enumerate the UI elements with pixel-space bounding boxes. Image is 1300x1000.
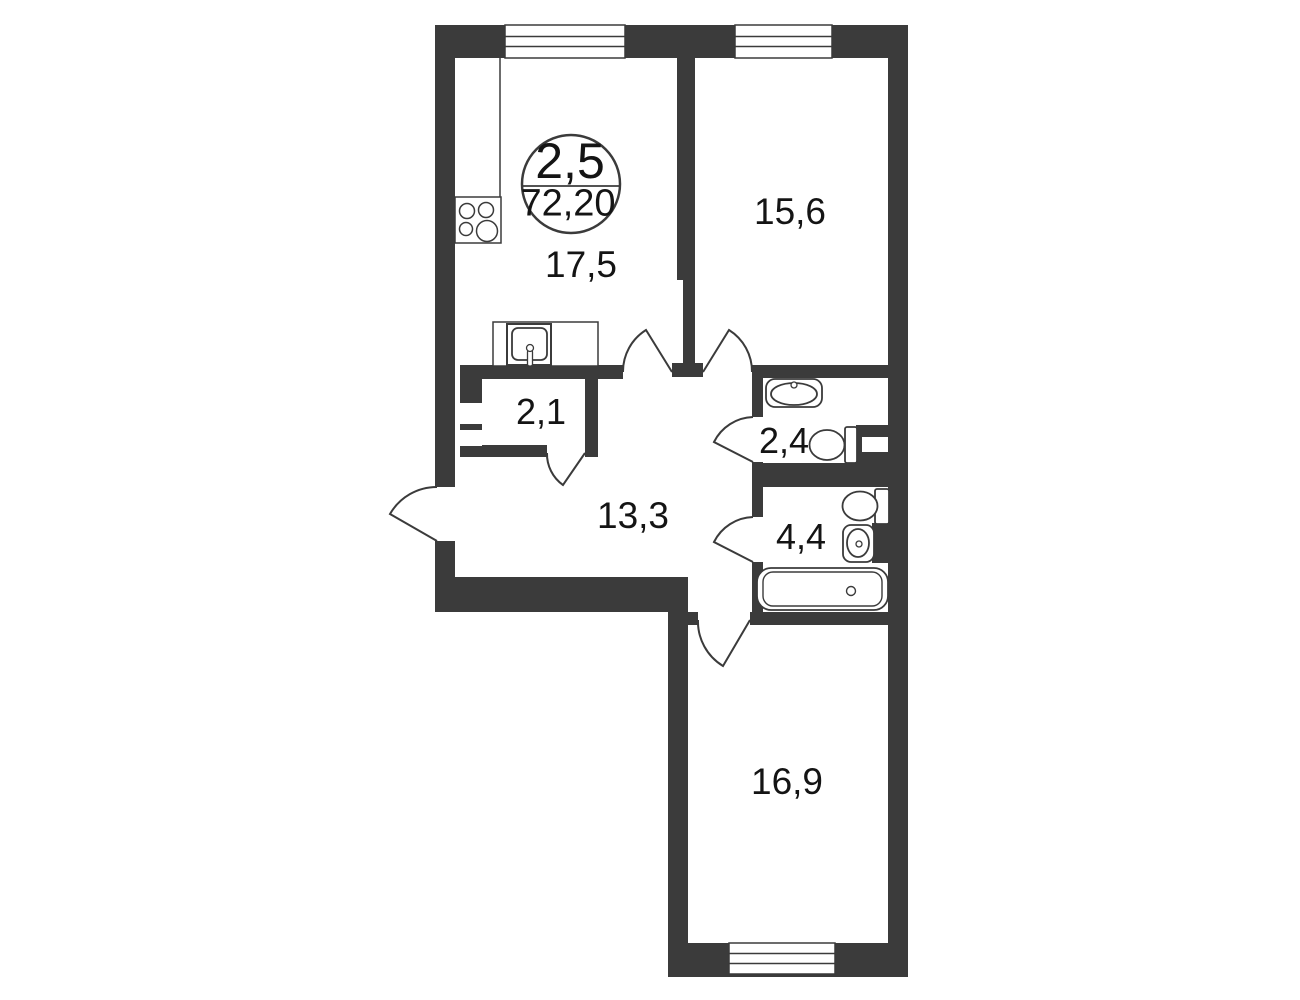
- window-icon: [729, 943, 835, 974]
- wall-divider-stub: [672, 363, 703, 377]
- badge-total-area: 72,20: [520, 183, 615, 226]
- door-arc-icon-storage: [547, 453, 585, 485]
- wall-divider-lower: [683, 280, 695, 365]
- shaft-right-bar2: [856, 452, 888, 464]
- badge-rooms-value: 2,5: [535, 132, 605, 190]
- shaft-slot: [458, 430, 482, 446]
- wall-wc-bath-divider: [752, 463, 890, 487]
- kitchen-sink-icon: [493, 322, 598, 366]
- wall-wc-top: [752, 365, 908, 378]
- wall-living-top: [750, 612, 908, 625]
- window-icon: [505, 25, 625, 58]
- wc-area-label: 2,4: [759, 420, 809, 462]
- window-icon: [735, 25, 832, 58]
- door-arc-icon-entrance: [390, 487, 437, 541]
- washbasin-icon: [843, 525, 874, 562]
- storage-area-label: 2,1: [516, 391, 566, 433]
- wall-wc-left-upper: [752, 377, 763, 417]
- door-arc-icon-wc: [714, 417, 753, 462]
- wall-divider-upper: [677, 58, 695, 280]
- wall-living-top-stub: [688, 612, 698, 625]
- washbasin-icon: [766, 379, 822, 407]
- wall-kitchen-bottom: [480, 365, 623, 379]
- bedroom-area-label: 15,6: [754, 191, 826, 233]
- door-arc-icon-bedroom: [703, 330, 752, 372]
- walls: [435, 25, 908, 977]
- wall-storage-right: [585, 377, 598, 457]
- door-arc-icon-kitchen: [623, 330, 672, 372]
- kitchen-area-label: 17,5: [545, 244, 617, 286]
- wall-wing-left: [668, 577, 688, 943]
- toilet-icon: [843, 489, 890, 524]
- floor-plan: 2,5 72,20 17,5 15,6 2,1 2,4 13,3 4,4 16,…: [0, 0, 1300, 1000]
- shaft-slot: [458, 403, 482, 424]
- toilet-icon: [810, 427, 858, 463]
- hallway-area-label: 13,3: [597, 495, 669, 537]
- door-arc-icon-bathroom: [714, 517, 753, 562]
- bathtub-icon: [757, 568, 888, 610]
- wall-hall-bottom: [435, 577, 688, 612]
- stove-icon: [455, 197, 501, 243]
- wall-left-upper: [435, 25, 455, 487]
- door-arc-icon-living: [698, 620, 750, 666]
- bathroom-area-label: 4,4: [776, 516, 826, 558]
- living-area-label: 16,9: [751, 761, 823, 803]
- wall-right: [888, 25, 908, 977]
